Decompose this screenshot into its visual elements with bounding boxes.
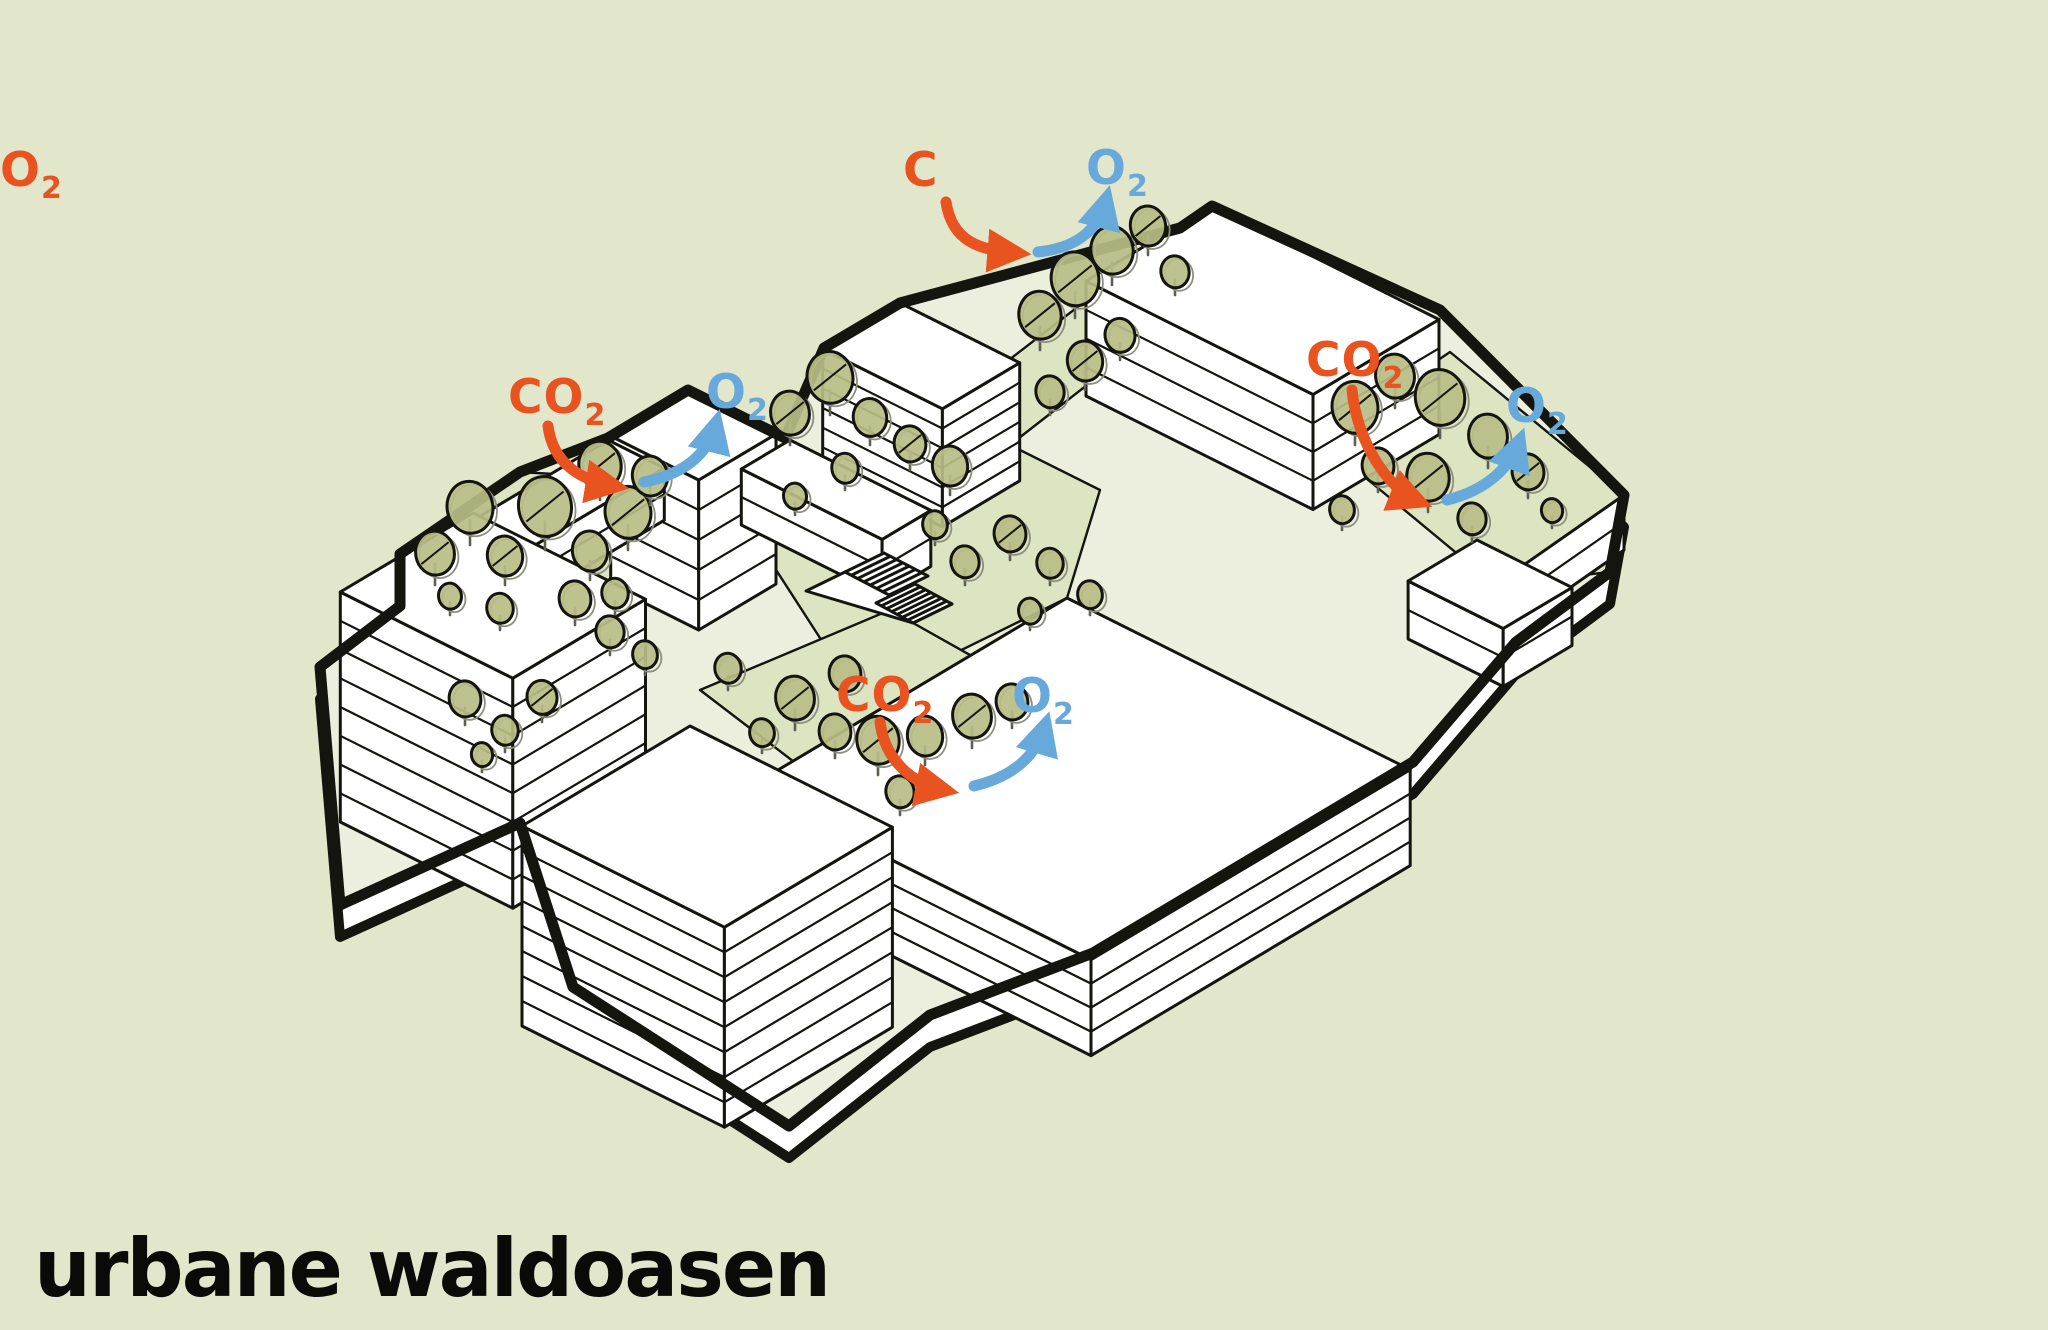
urban-forest-oasis-diagram: CO2 O2 CO2 O2 CO2 O2 CO2 O2 urbane waldo… xyxy=(0,0,2048,1330)
page-title: urbane waldoasen xyxy=(34,1222,829,1315)
